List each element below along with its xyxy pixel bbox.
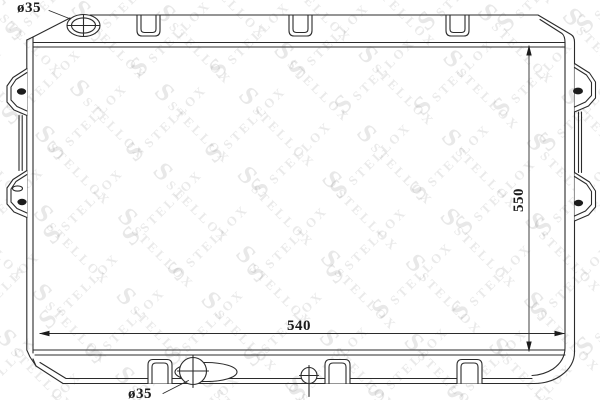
height-dimension-label: 550 xyxy=(511,188,527,212)
top-mounting-slots xyxy=(137,16,469,37)
leader-line xyxy=(49,11,71,20)
width-dimension-label: 540 xyxy=(287,318,311,334)
radiator-diagram: 550 540 ø35 ø35 xyxy=(0,0,600,400)
mounting-bracket-mid-left xyxy=(7,116,27,218)
inlet-diameter-label: ø35 xyxy=(17,0,41,16)
bracket-pin xyxy=(573,88,583,95)
outlet-diameter-label: ø35 xyxy=(128,386,152,400)
bracket-hole xyxy=(574,200,583,206)
petcock-valve xyxy=(300,366,319,397)
dimension-height: 550 xyxy=(511,45,532,352)
bottom-tank xyxy=(33,350,565,355)
arrow-right-icon xyxy=(555,331,566,336)
bracket-hole xyxy=(17,199,26,205)
bracket-hole xyxy=(17,88,26,94)
radiator-technical-drawing: SSTELLOXSSTELLOXSSTELLOXSSTELLOXSSTELLOX… xyxy=(0,0,600,400)
mounting-bracket-top-left xyxy=(7,69,27,116)
inlet-diameter-callout: ø35 xyxy=(17,0,71,19)
mounting-bracket-top-right xyxy=(573,64,596,113)
dimension-width: 540 xyxy=(39,318,565,336)
mounting-bracket-mid-right xyxy=(574,112,596,221)
inlet-port xyxy=(67,15,100,37)
arrow-left-icon xyxy=(39,331,50,336)
top-tank xyxy=(33,43,565,48)
